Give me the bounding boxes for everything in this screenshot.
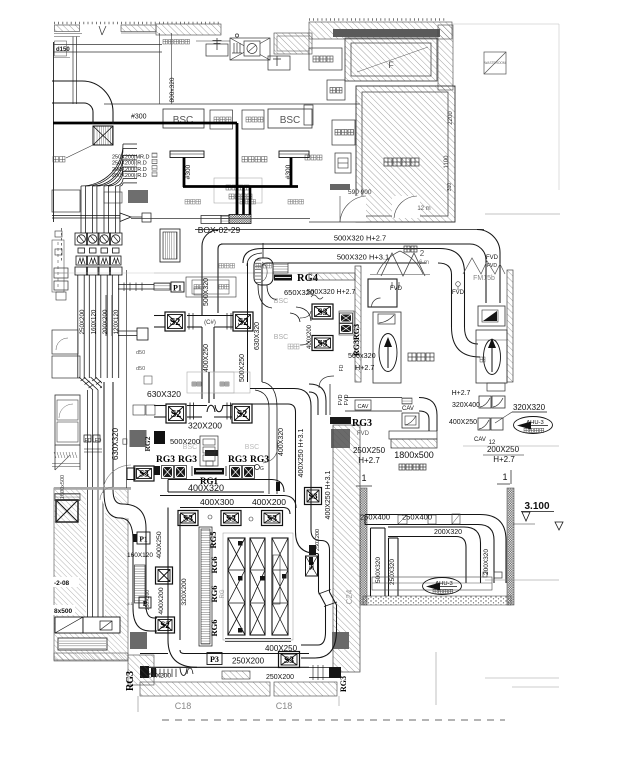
- svg-text:6 m: 6 m: [419, 260, 429, 266]
- svg-text:BSC: BSC: [274, 334, 288, 341]
- svg-text:400X250: 400X250: [156, 531, 163, 558]
- svg-text:320X200: 320X200: [181, 578, 188, 605]
- svg-text:250X200: 250X200: [266, 674, 294, 681]
- svg-text:1: 1: [502, 472, 507, 482]
- svg-text:400X200: 400X200: [158, 587, 165, 614]
- svg-text:#300: #300: [185, 164, 192, 179]
- svg-text:160X120: 160X120: [127, 552, 153, 559]
- svg-text:RG3: RG3: [125, 671, 136, 691]
- svg-text:FVD: FVD: [487, 263, 497, 269]
- svg-text:500X320 H+3.1: 500X320 H+3.1: [337, 253, 389, 262]
- svg-text:H+2.7: H+2.7: [452, 390, 471, 397]
- svg-text:S3: S3: [226, 514, 236, 524]
- svg-text:P1: P1: [139, 535, 148, 544]
- svg-text:250X200|(R.D: 250X200|(R.D: [112, 161, 147, 167]
- svg-text:500x320: 500x320: [348, 351, 376, 360]
- svg-text:RG3: RG3: [339, 676, 348, 692]
- svg-text:250X200: 250X200: [79, 309, 86, 334]
- svg-text:S3: S3: [317, 308, 327, 318]
- svg-text:FM15b: FM15b: [473, 275, 495, 282]
- svg-text:#300: #300: [131, 114, 147, 121]
- svg-text:160X120: 160X120: [90, 309, 97, 334]
- svg-text:320X320: 320X320: [513, 403, 546, 412]
- svg-text:S3: S3: [139, 469, 149, 479]
- svg-text:BSC: BSC: [183, 444, 197, 451]
- svg-text:S2: S2: [160, 620, 170, 630]
- svg-text:BSC: BSC: [280, 115, 301, 126]
- svg-text:BSC: BSC: [274, 298, 288, 305]
- svg-text:250X400: 250X400: [360, 513, 390, 522]
- svg-text:G: G: [260, 466, 264, 472]
- svg-text:590 900: 590 900: [348, 189, 372, 196]
- svg-text:(C#): (C#): [204, 320, 216, 326]
- svg-text:C18: C18: [175, 701, 192, 711]
- svg-text:CAV: CAV: [474, 437, 486, 443]
- svg-text:400X320: 400X320: [188, 483, 224, 493]
- svg-text:FVD: FVD: [452, 290, 465, 296]
- svg-text:S3: S3: [307, 562, 316, 570]
- svg-text:320X400: 320X400: [452, 402, 480, 409]
- svg-text:S2: S2: [170, 317, 181, 328]
- svg-text:d150: d150: [56, 47, 70, 53]
- svg-text:RG6: RG6: [209, 557, 219, 574]
- svg-text:C24: C24: [345, 589, 354, 604]
- svg-text:2: 2: [420, 249, 425, 258]
- svg-text:120X120: 120X120: [113, 309, 120, 334]
- svg-text:3.100: 3.100: [524, 501, 549, 512]
- svg-text:500X320: 500X320: [375, 557, 382, 583]
- svg-text:400X200: 400X200: [252, 497, 286, 507]
- svg-text:250X400: 250X400: [402, 513, 432, 522]
- svg-text:310: 310: [447, 183, 453, 192]
- svg-text:RG3: RG3: [178, 455, 197, 465]
- svg-text:400X250: 400X250: [203, 344, 210, 372]
- svg-text:500X320 H+2.7: 500X320 H+2.7: [307, 289, 356, 296]
- svg-text:FD: FD: [339, 364, 345, 371]
- svg-text:1100: 1100: [444, 155, 450, 169]
- svg-text:RG3: RG3: [156, 455, 175, 465]
- svg-text:200X250: 200X250: [487, 445, 520, 454]
- svg-text:BSC: BSC: [245, 444, 259, 451]
- svg-text:12 m: 12 m: [417, 206, 430, 212]
- svg-text:d50: d50: [136, 350, 145, 356]
- svg-text:RG2: RG2: [143, 436, 152, 451]
- svg-text:-2-08: -2-08: [54, 580, 70, 587]
- svg-text:320X200: 320X200: [188, 421, 222, 431]
- svg-text:RG: RG: [220, 589, 226, 598]
- svg-text:H+2.7: H+2.7: [355, 363, 374, 372]
- svg-text:BOX-02-29: BOX-02-29: [198, 225, 241, 235]
- svg-text:800x320: 800x320: [169, 77, 176, 102]
- svg-text:F: F: [388, 60, 394, 70]
- svg-text:400X200: 400X200: [307, 324, 313, 349]
- svg-text:400X250 H+3.1: 400X250 H+3.1: [325, 470, 332, 519]
- svg-text:H+2.7: H+2.7: [493, 455, 515, 464]
- svg-text:630X320: 630X320: [147, 389, 181, 399]
- svg-text:RG3: RG3: [228, 455, 247, 465]
- svg-text:S3: S3: [309, 491, 318, 501]
- svg-text:400X320: 400X320: [278, 428, 285, 456]
- svg-text:C18: C18: [276, 701, 293, 711]
- svg-text:RG6: RG6: [209, 586, 219, 603]
- svg-text:250X200|MR.D: 250X200|MR.D: [112, 155, 150, 161]
- svg-text:8x500: 8x500: [54, 608, 72, 615]
- svg-text:S3: S3: [317, 339, 327, 349]
- svg-text:400X250: 400X250: [449, 419, 477, 426]
- svg-text:1: 1: [361, 473, 366, 483]
- svg-text:400X250 H+3.1: 400X250 H+3.1: [298, 428, 305, 477]
- svg-text:500X250: 500X250: [239, 354, 246, 382]
- svg-text:S3: S3: [284, 656, 294, 666]
- svg-text:400X300: 400X300: [200, 497, 234, 507]
- svg-text:CAV: CAV: [402, 406, 414, 412]
- svg-text:d50: d50: [136, 366, 145, 372]
- svg-text:H+2.7: H+2.7: [358, 456, 380, 465]
- svg-text:S3: S3: [183, 514, 193, 524]
- svg-text:500X320: 500X320: [203, 278, 210, 306]
- svg-text:200X320: 200X320: [434, 529, 462, 536]
- svg-text:#300: #300: [285, 164, 292, 179]
- svg-text:200X200: 200X200: [102, 309, 109, 334]
- svg-text:P3: P3: [210, 655, 219, 664]
- svg-text:200X200|(R.D: 200X200|(R.D: [112, 173, 147, 179]
- svg-text:1600x500: 1600x500: [60, 475, 66, 499]
- svg-text:FD: FD: [95, 438, 102, 444]
- svg-text:S2: S2: [238, 317, 249, 328]
- svg-text:S2: S2: [237, 409, 248, 420]
- svg-text:CAV: CAV: [358, 404, 369, 410]
- svg-text:250X200: 250X200: [145, 590, 151, 610]
- svg-text:500X320 H+2.7: 500X320 H+2.7: [334, 234, 386, 243]
- svg-text:S2: S2: [171, 409, 182, 420]
- svg-text:250X320: 250X320: [389, 559, 396, 585]
- svg-text:200X200|(R.D: 200X200|(R.D: [112, 167, 147, 173]
- svg-text:630X320: 630X320: [111, 427, 120, 460]
- svg-text:RG3: RG3: [250, 455, 269, 465]
- svg-text:200X320: 200X320: [483, 549, 490, 575]
- svg-text:2200: 2200: [448, 111, 454, 125]
- svg-text:FVD: FVD: [486, 255, 499, 261]
- svg-text:P1: P1: [173, 284, 182, 293]
- svg-text:WASTEROOM: WASTEROOM: [484, 61, 505, 65]
- svg-text:S3: S3: [267, 514, 277, 524]
- svg-text:RG5: RG5: [208, 532, 218, 549]
- svg-text:630X320: 630X320: [254, 322, 261, 350]
- svg-text:d.1: d.1: [127, 601, 133, 606]
- svg-text:1800x500: 1800x500: [394, 450, 434, 460]
- svg-text:250X200: 250X200: [232, 657, 265, 666]
- svg-text:FVD: FVD: [344, 394, 350, 405]
- svg-text:RG6: RG6: [209, 620, 219, 637]
